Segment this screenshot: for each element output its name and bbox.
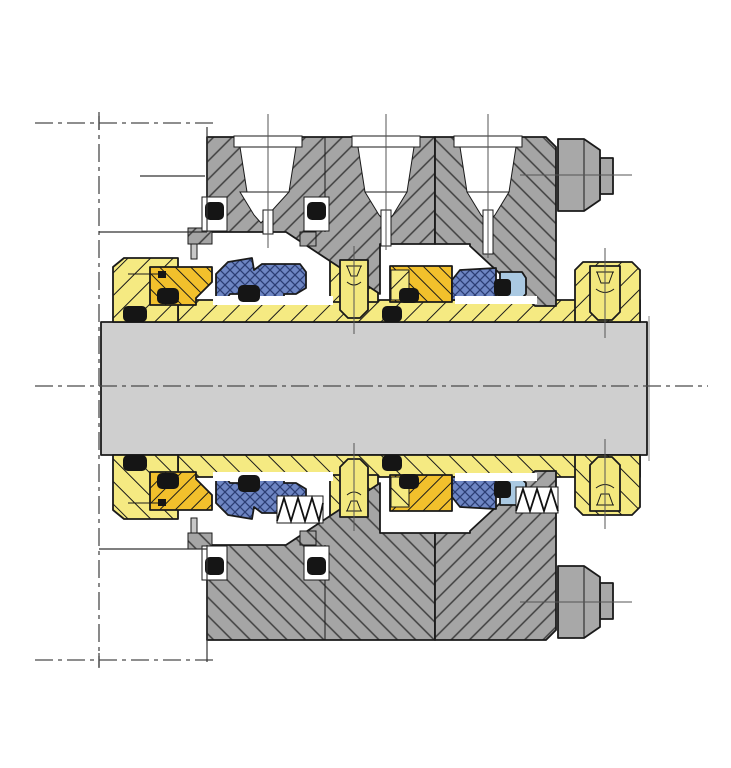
seat-oring [494,279,511,296]
shaft [101,316,649,461]
stud-end [600,158,613,194]
drive-pin [158,271,166,278]
retainer-gap [213,296,333,305]
gland-oring [205,202,224,220]
gland-oring [307,202,326,220]
oring [157,288,179,304]
spring [516,487,558,513]
seal-section-drawing [0,0,731,768]
shaft-body [101,322,647,455]
drawing-canvas [0,0,731,768]
retainer-gap [455,296,537,304]
oring [399,288,419,303]
sleeve-oring [382,306,402,322]
sleeve-oring [123,306,147,322]
anti-rotation-pin [191,244,197,259]
spring [277,496,323,523]
gland-bracket [300,232,316,246]
oring [238,285,260,302]
bellows-2 [452,268,496,300]
